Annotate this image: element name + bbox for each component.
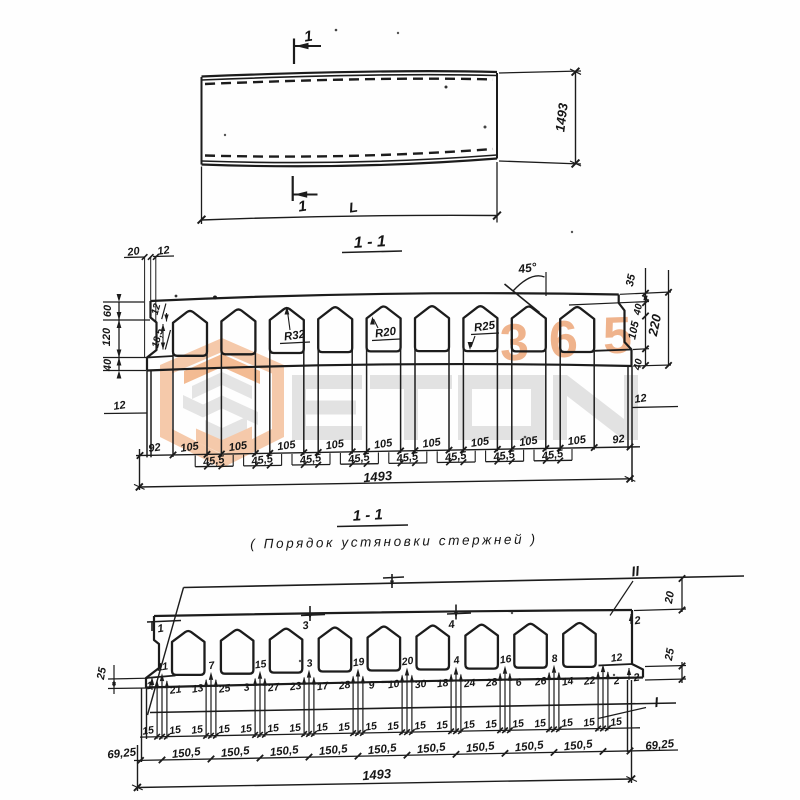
svg-text:30: 30 [414,678,427,692]
svg-text:15: 15 [533,717,546,731]
svg-text:6: 6 [548,311,579,370]
svg-text:28: 28 [337,679,351,693]
svg-text:1 - 1: 1 - 1 [352,506,383,525]
svg-text:25: 25 [217,682,231,696]
svg-text:18: 18 [436,677,449,691]
svg-text:15: 15 [462,718,475,732]
svg-text:23: 23 [288,680,302,694]
svg-text:1493: 1493 [363,468,394,486]
svg-text:12: 12 [610,651,623,665]
svg-text:20: 20 [400,655,414,669]
svg-text:40: 40 [102,358,114,372]
svg-text:11: 11 [156,660,169,673]
svg-text:15: 15 [484,718,497,732]
svg-text:28: 28 [484,676,498,690]
svg-text:26: 26 [533,675,547,689]
svg-text:45°: 45° [516,260,537,277]
svg-text:15: 15 [364,720,377,734]
svg-text:92: 92 [612,433,626,447]
svg-text:12: 12 [113,399,127,413]
svg-text:15: 15 [386,720,399,734]
svg-text:15: 15 [582,716,595,730]
svg-text:16: 16 [499,653,512,667]
svg-text:120: 120 [101,327,113,346]
svg-text:15: 15 [413,719,426,733]
svg-text:60: 60 [102,304,114,317]
svg-text:15: 15 [337,721,350,735]
svg-text:15: 15 [266,722,279,736]
svg-text:12: 12 [634,392,648,406]
svg-text:21: 21 [168,683,182,697]
svg-text:15: 15 [190,723,203,737]
svg-text:15: 15 [217,723,230,737]
svg-text:92: 92 [148,441,162,455]
svg-text:15: 15 [609,716,622,730]
svg-text:15: 15 [239,722,252,736]
svg-text:15: 15 [511,717,524,731]
svg-text:10: 10 [387,678,400,692]
svg-text:1 - 1: 1 - 1 [353,233,386,252]
svg-text:15: 15 [254,658,267,672]
svg-text:22: 22 [582,674,596,688]
svg-text:1493: 1493 [362,766,393,784]
svg-text:13: 13 [191,682,204,696]
svg-text:15: 15 [141,724,154,738]
svg-text:15: 15 [315,721,328,735]
svg-text:15: 15 [435,719,448,733]
svg-text:15: 15 [168,724,181,738]
svg-text:19: 19 [352,656,365,670]
svg-text:14: 14 [561,675,574,689]
svg-text:15: 15 [560,716,573,730]
svg-text:24: 24 [462,677,476,691]
svg-text:15: 15 [288,721,301,735]
